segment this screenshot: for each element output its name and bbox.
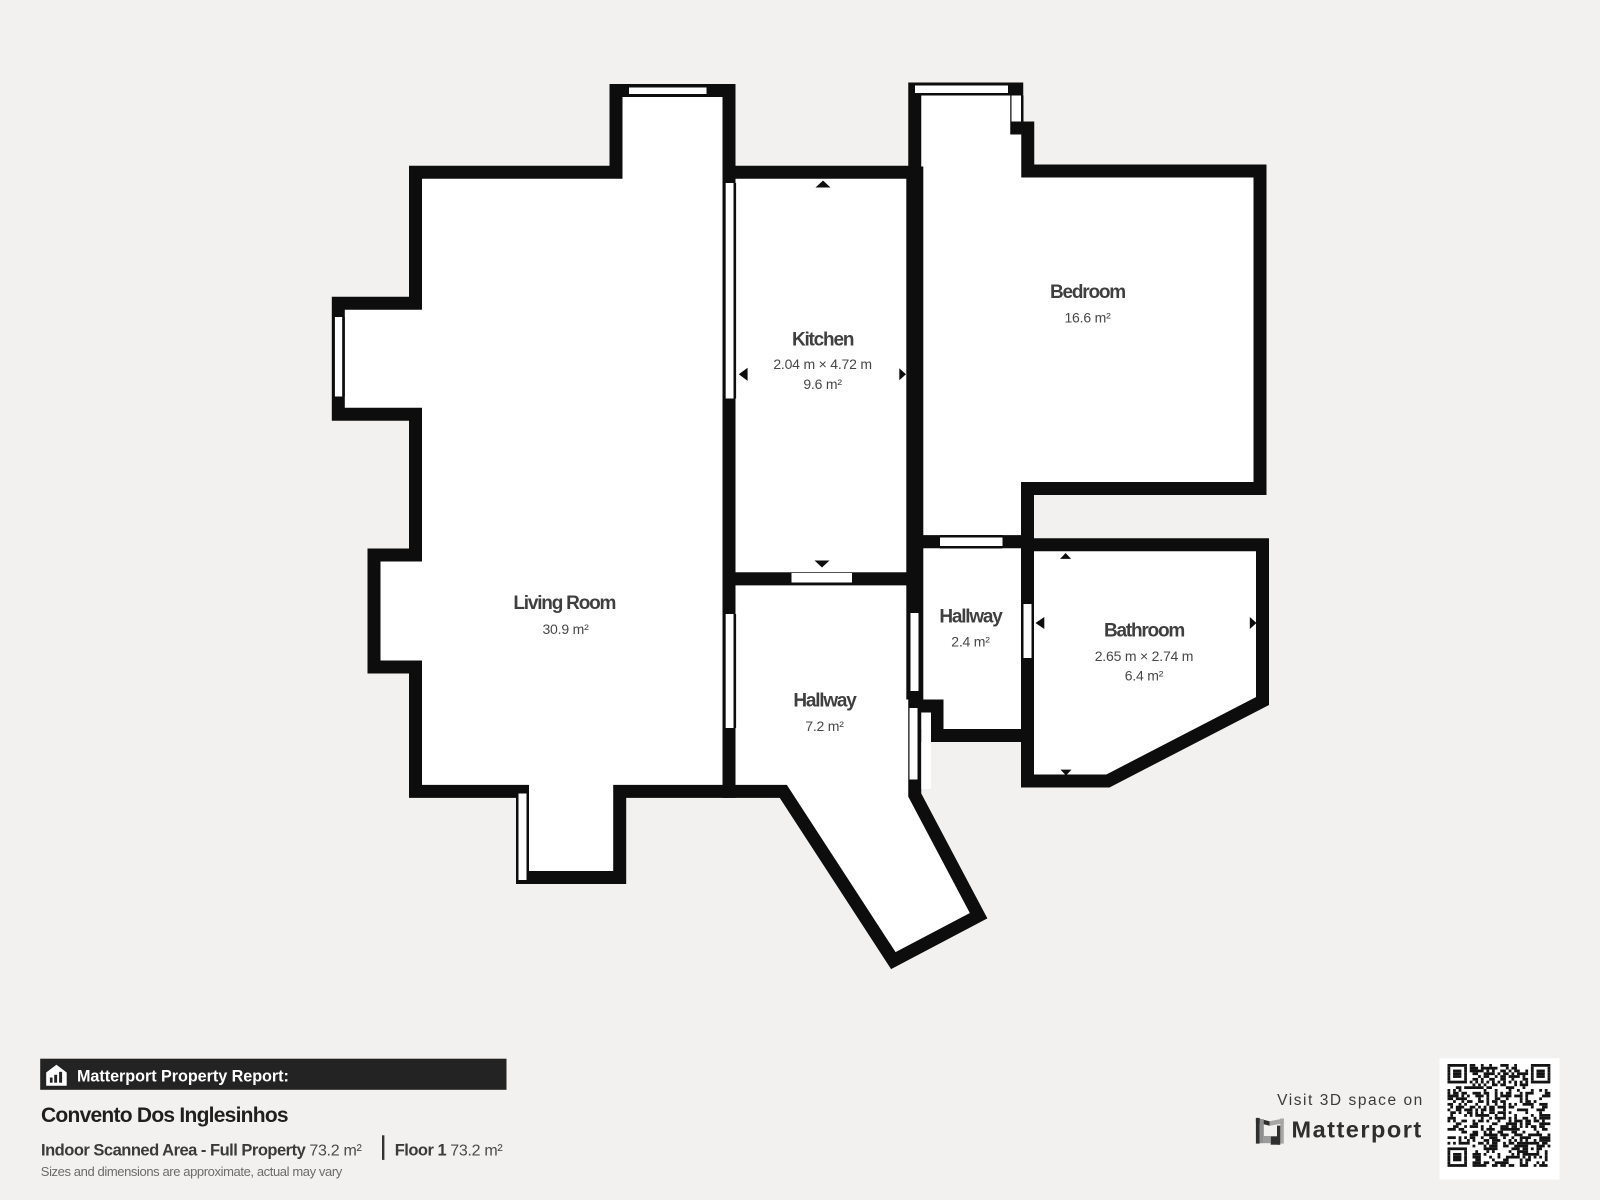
svg-text:16.6 m²: 16.6 m² <box>1064 310 1111 326</box>
svg-text:Sizes and dimensions are appro: Sizes and dimensions are approximate, ac… <box>41 1164 343 1179</box>
svg-text:7.2 m²: 7.2 m² <box>805 718 844 734</box>
svg-text:Living Room: Living Room <box>513 593 615 614</box>
svg-text:Floor 1 73.2 m²: Floor 1 73.2 m² <box>395 1141 504 1159</box>
svg-text:Bathroom: Bathroom <box>1104 621 1184 642</box>
svg-text:6.4 m²: 6.4 m² <box>1125 668 1164 684</box>
svg-text:Hallway: Hallway <box>793 691 857 712</box>
svg-text:2.04 m × 4.72 m: 2.04 m × 4.72 m <box>773 356 872 372</box>
svg-text:2.65 m × 2.74 m: 2.65 m × 2.74 m <box>1095 648 1194 664</box>
svg-text:Hallway: Hallway <box>939 607 1003 628</box>
svg-text:Visit 3D space on: Visit 3D space on <box>1277 1092 1424 1109</box>
svg-text:Kitchen: Kitchen <box>792 330 854 351</box>
svg-text:2.4 m²: 2.4 m² <box>951 634 990 650</box>
svg-text:Matterport Property Report:: Matterport Property Report: <box>77 1068 289 1086</box>
svg-text:30.9 m²: 30.9 m² <box>542 621 589 637</box>
svg-text:Indoor Scanned Area - Full Pro: Indoor Scanned Area - Full Property 73.2… <box>41 1141 362 1159</box>
svg-text:Matterport: Matterport <box>1292 1116 1423 1142</box>
svg-text:Bedroom: Bedroom <box>1050 282 1125 303</box>
svg-text:Convento Dos Inglesinhos: Convento Dos Inglesinhos <box>41 1104 288 1127</box>
svg-text:9.6 m²: 9.6 m² <box>803 376 842 392</box>
